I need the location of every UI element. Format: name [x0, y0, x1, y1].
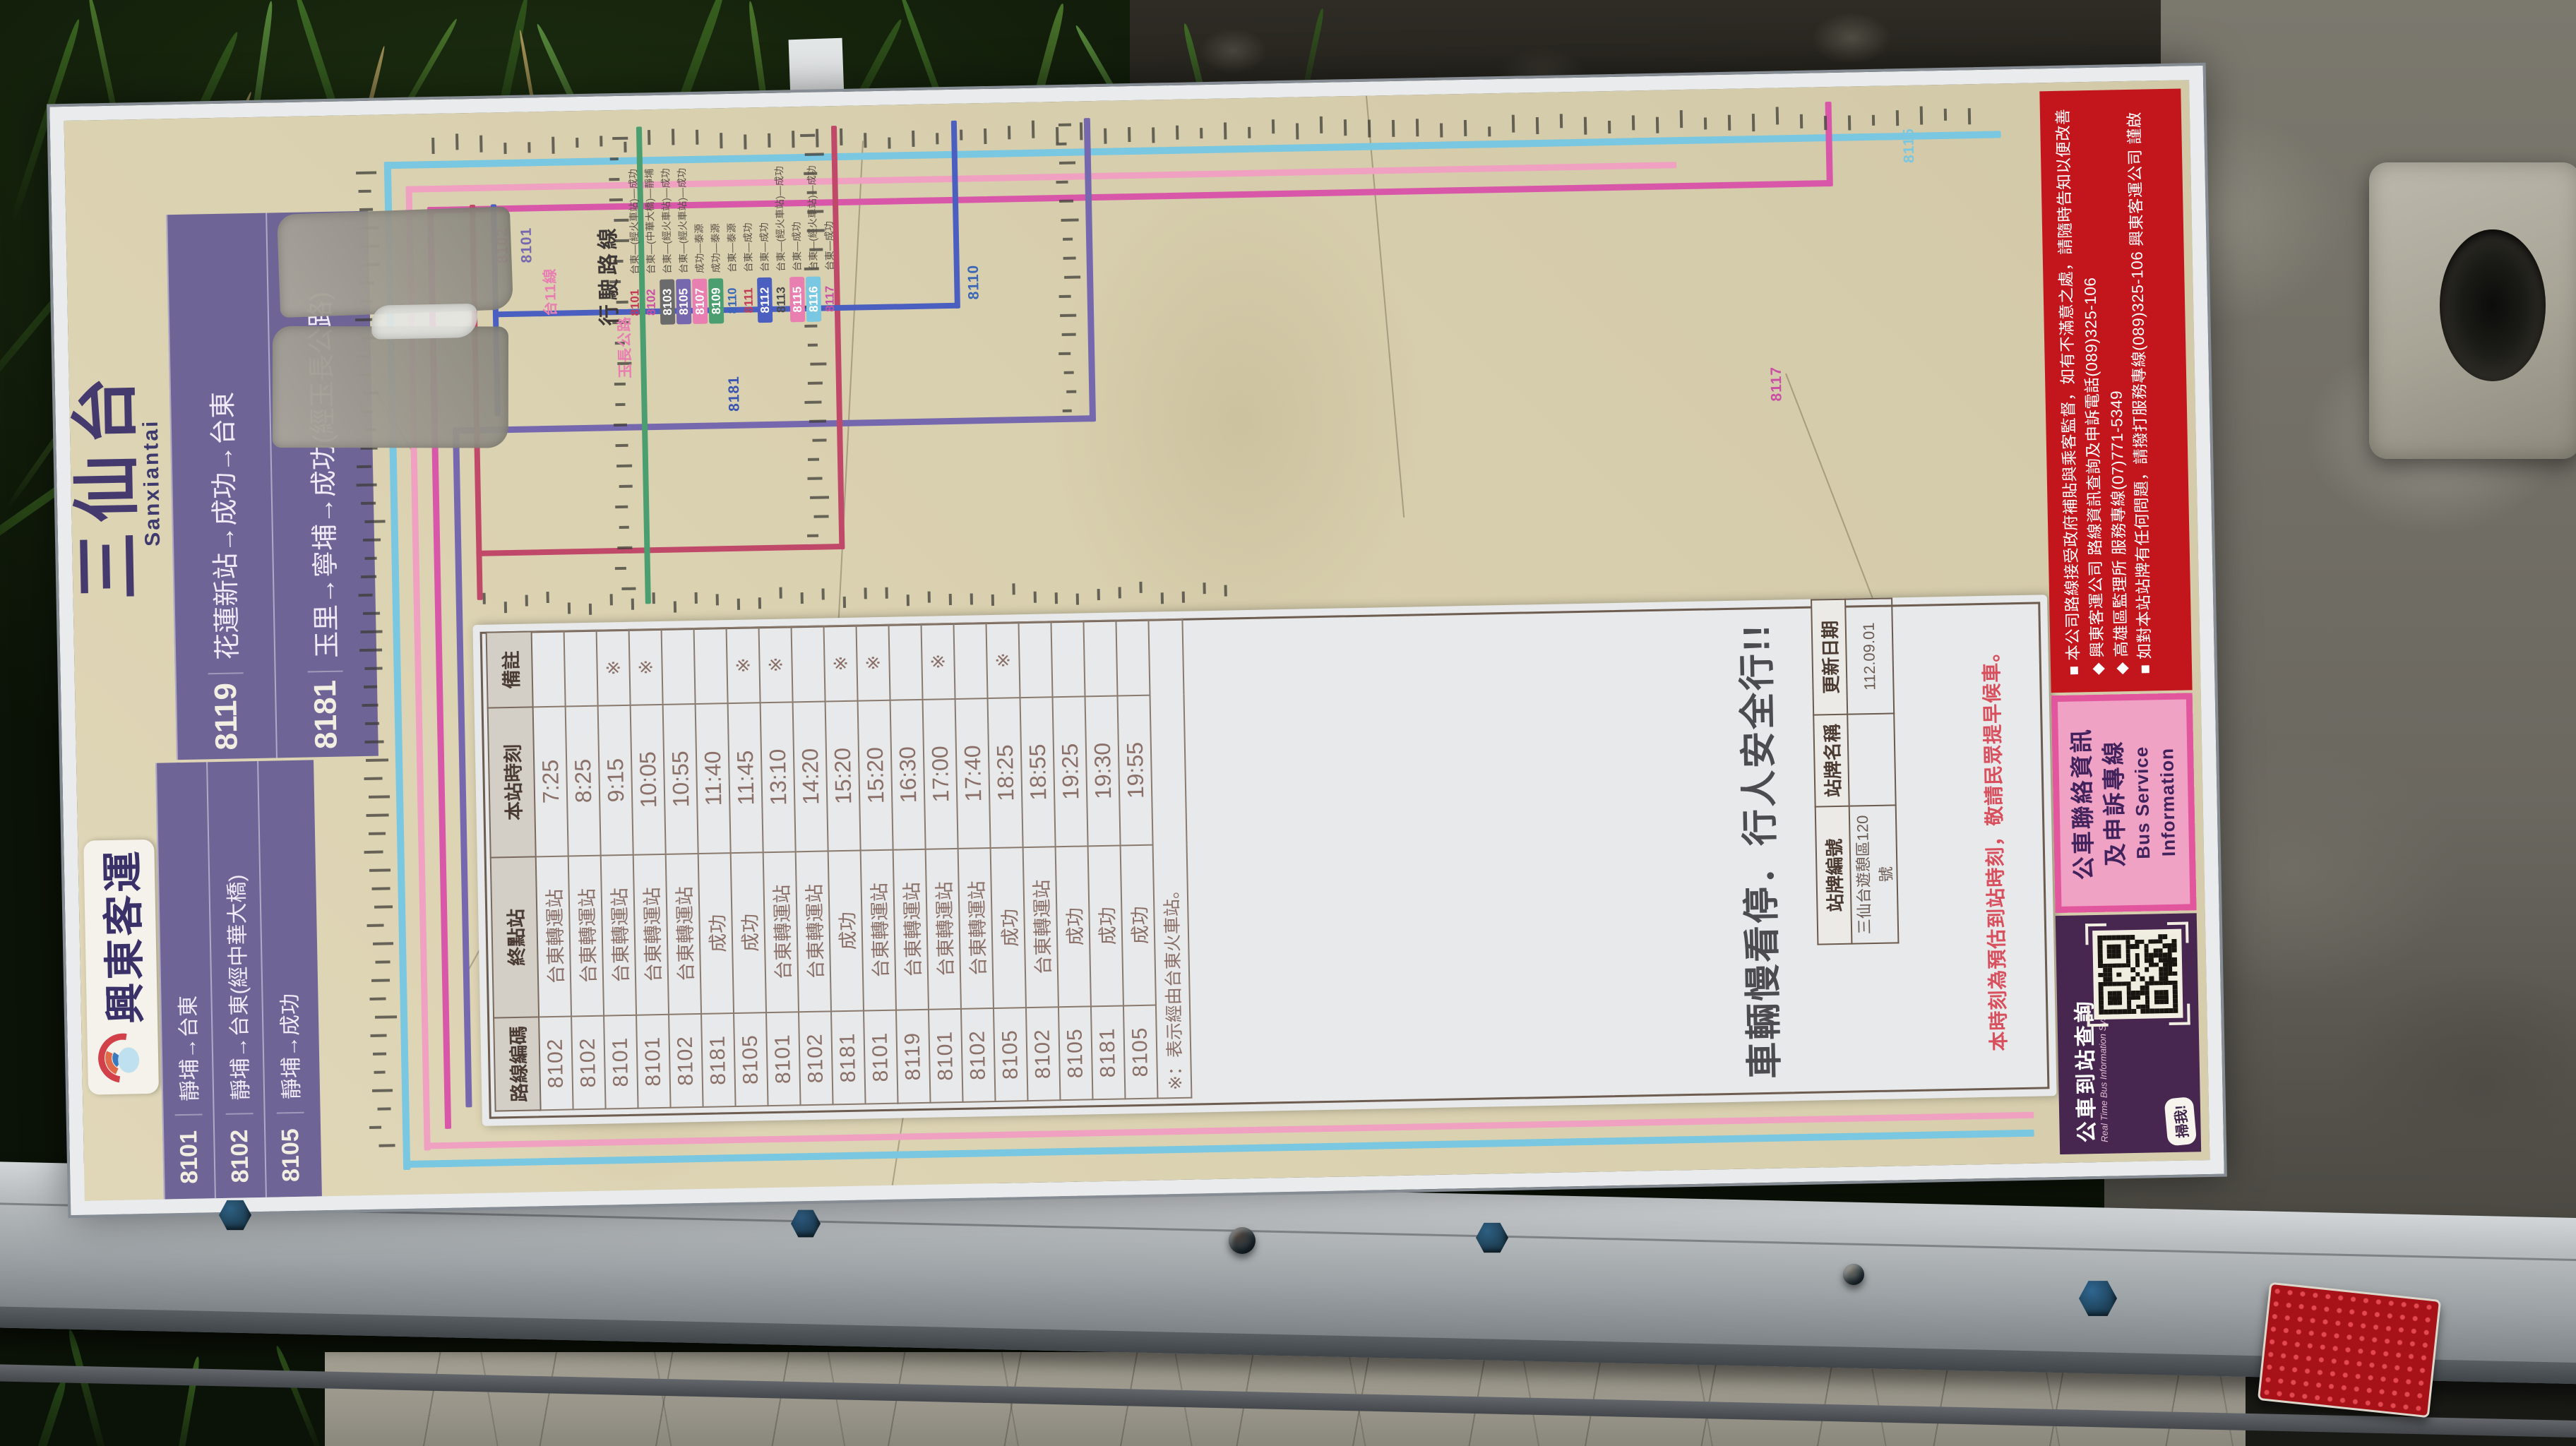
safety-slogan: 車輛慢看停．行人安全行!!	[1726, 600, 1789, 1102]
station-tick	[1063, 371, 1073, 374]
remark: ※	[986, 622, 1020, 698]
timetable-header: 終點站	[491, 856, 539, 1017]
departure-route: 8102	[539, 1016, 573, 1110]
station-tick	[1203, 582, 1205, 594]
station-tick	[810, 496, 829, 499]
station-tick	[1560, 114, 1563, 128]
station-tick	[369, 998, 386, 1000]
legend-route-number: 8102	[643, 280, 659, 325]
contact-line: Information	[2153, 693, 2182, 912]
station-tick	[1008, 126, 1010, 139]
legend-route-destination: 台東—成功	[789, 222, 804, 271]
stop-info-label: 站牌編號	[1815, 806, 1852, 945]
departure-time: 7:25	[533, 707, 568, 857]
terminus: 成功	[1088, 846, 1123, 1007]
terminus: 成功	[698, 853, 734, 1014]
station-tick	[758, 597, 761, 609]
station-tick	[356, 172, 376, 175]
station-tick	[1061, 218, 1079, 221]
departure-route: 8105	[994, 1008, 1028, 1101]
legend-route-destination: 台東—成功	[756, 222, 771, 272]
departure-time: 15:20	[825, 701, 861, 852]
legend-route-destination: 台東—(經火車站)—成功	[626, 169, 642, 275]
station-tick	[525, 595, 528, 607]
legend-route-number: 8112	[757, 277, 773, 323]
station-tick	[804, 401, 822, 404]
station-tick	[616, 465, 632, 467]
station-tick	[1080, 123, 1083, 141]
station-tick	[1224, 122, 1227, 139]
departure-route: 8102	[961, 1008, 996, 1102]
station-tick	[1584, 117, 1587, 135]
station-tick	[1063, 238, 1073, 241]
departure-time: 19:25	[1053, 696, 1088, 847]
station-tick	[1848, 116, 1851, 130]
station-tick	[1097, 589, 1100, 600]
station-tick	[912, 131, 914, 146]
terminus: 成功	[1121, 845, 1156, 1006]
departure-time: 11:40	[696, 703, 731, 854]
terminus: 台東轉運站	[926, 849, 961, 1010]
station-tick	[809, 419, 826, 422]
station-tick	[814, 515, 828, 518]
station-tick	[615, 567, 626, 570]
station-tick	[631, 599, 634, 610]
bus-company-logo-icon	[96, 1032, 149, 1084]
departure-time: 18:25	[988, 698, 1023, 848]
station-tick	[1224, 585, 1227, 596]
stop-info-value: 112.09.01	[1845, 598, 1894, 714]
stop-info-table: 站牌編號站牌名稱更新日期三仙台遊憩區120號112.09.01	[1811, 597, 1899, 945]
map-route-line	[403, 1130, 2034, 1168]
station-tick	[504, 602, 507, 613]
departure-time: 9:15	[598, 705, 633, 856]
route-row: 8101靜埔→台東	[155, 762, 215, 1199]
departure-route: 8102	[669, 1014, 703, 1108]
station-tick	[1536, 117, 1539, 134]
station-tick	[888, 137, 890, 148]
departure-route: 8119	[896, 1010, 931, 1104]
station-tick	[1056, 127, 1059, 143]
station-tick	[479, 136, 482, 153]
station-tick	[363, 539, 381, 542]
station-tick	[1059, 295, 1071, 298]
departure-time: 18:55	[1020, 697, 1056, 847]
departure-route: 8181	[1091, 1005, 1126, 1099]
route-number: 8102	[225, 1113, 254, 1198]
map-route-line	[1825, 102, 1833, 186]
map-legend-title: 行駛路線	[588, 121, 624, 326]
timetable-header: 備註	[487, 631, 533, 707]
station-tick	[455, 134, 458, 150]
station-tick	[363, 612, 381, 615]
station-tick	[674, 601, 676, 612]
departure-time: 15:20	[858, 700, 893, 851]
map-route-line	[951, 121, 960, 309]
station-tick	[716, 594, 719, 605]
station-tick	[369, 1126, 381, 1129]
station-tick	[1060, 314, 1076, 317]
station-tick	[1920, 107, 1923, 125]
station-tick	[1012, 584, 1015, 595]
departure-route: 8105	[1059, 1006, 1093, 1100]
remark	[694, 628, 728, 704]
station-tick	[1368, 119, 1371, 137]
station-tick	[1392, 120, 1395, 137]
terminus: 成功	[828, 851, 864, 1012]
station-tick	[991, 594, 994, 605]
route-destination: 靜埔→台東(經中華大橋)	[219, 874, 254, 1113]
station-tick	[431, 138, 434, 154]
departure-time: 13:10	[761, 702, 796, 852]
route-destination: 靜埔→成功	[272, 993, 305, 1113]
station-tick	[374, 905, 393, 909]
contact-line: 公車聯絡資訊	[2065, 695, 2101, 913]
map-route-label: 8117	[1768, 366, 1786, 402]
station-tick	[864, 133, 866, 148]
station-tick	[1032, 120, 1034, 138]
remark	[564, 631, 598, 707]
station-tick	[805, 325, 818, 328]
route-row: 8105靜埔→成功	[257, 760, 316, 1197]
remark	[532, 631, 566, 707]
station-tick	[361, 502, 376, 505]
station-tick	[1200, 128, 1203, 138]
map-route-line	[453, 415, 1095, 434]
remark: ※	[857, 625, 890, 701]
remark	[792, 626, 825, 703]
stop-info-label: 更新日期	[1811, 599, 1847, 715]
station-tick	[1872, 115, 1875, 126]
station-tick	[369, 795, 389, 799]
station-tick	[372, 1089, 393, 1092]
legend-route-destination: 台東—泰源	[724, 223, 739, 273]
station-tick	[616, 403, 626, 406]
station-tick	[366, 758, 388, 762]
station-tick	[1656, 117, 1659, 133]
departure-route: 8102	[1026, 1007, 1061, 1101]
station-tick	[364, 667, 382, 670]
remark	[662, 628, 696, 705]
legend-route-number: 8110	[724, 278, 740, 323]
station-tick	[503, 143, 506, 154]
station-tick	[1076, 593, 1079, 604]
station-tick	[1066, 390, 1076, 393]
remark	[1083, 621, 1117, 697]
station-tick	[359, 649, 382, 652]
legend-route-number: 8101	[627, 280, 643, 325]
station-tick	[372, 887, 390, 890]
station-tick	[366, 813, 388, 817]
station-tick	[807, 477, 822, 480]
departure-time: 8:25	[566, 706, 601, 856]
station-tick	[365, 520, 386, 523]
remark	[1116, 620, 1150, 696]
legend-route-number: 8103	[660, 279, 675, 324]
station-tick	[378, 1107, 391, 1110]
station-tick	[364, 777, 382, 780]
departure-route: 8101	[864, 1010, 898, 1104]
station-tick	[1488, 126, 1491, 137]
map-route-label: 台11線	[539, 268, 561, 316]
departure-route: 8101	[929, 1009, 963, 1103]
legend-route-number: 8116	[806, 277, 821, 322]
arrival-query-panel: 公車到站查詢 Real Time Bus Information System …	[2056, 913, 2201, 1154]
station-tick	[610, 594, 613, 605]
legend-route-destination: 台東—(經火車站)—成功	[772, 166, 788, 272]
tape-patch	[277, 206, 513, 318]
station-tick	[970, 593, 973, 604]
stop-info-label: 站牌名稱	[1813, 715, 1849, 807]
tape-patch-white	[371, 304, 478, 340]
stop-info-value	[1847, 714, 1895, 806]
station-tick	[355, 318, 374, 321]
terminus: 成功	[991, 847, 1026, 1008]
legend-route-destination: 台東—成功	[740, 222, 755, 272]
station-tick	[737, 598, 740, 609]
terminus: 成功	[1056, 846, 1091, 1007]
station-tick	[364, 851, 383, 854]
station-tick	[379, 1144, 395, 1147]
station-tick	[1608, 121, 1611, 133]
station-tick	[1824, 116, 1827, 131]
photo-scene: 興東客運 8101靜埔→台東8102靜埔→台東(經中華大橋)8105靜埔→成功 …	[0, 0, 2576, 1446]
tape-patch	[273, 326, 508, 448]
terminus: 台東轉運站	[796, 851, 831, 1012]
map-route-line	[1084, 118, 1096, 422]
departure-time: 19:30	[1085, 696, 1121, 847]
station-tick	[527, 143, 530, 153]
concrete-slab	[2369, 162, 2576, 459]
legend-route-number: 8107	[692, 279, 708, 324]
station-tick	[1440, 124, 1443, 138]
station-tick	[1161, 592, 1164, 604]
terminus: 成功	[731, 852, 766, 1013]
legend-route-destination: 台東—成功	[821, 221, 836, 270]
legend-route-destination: 成功—泰源	[691, 224, 706, 273]
legend-route-number: 8117	[822, 276, 837, 321]
station-tick	[801, 592, 804, 604]
terminus: 台東轉運站	[666, 854, 701, 1015]
departure-route: 8101	[766, 1012, 801, 1106]
contact-line: 及申訴專線	[2097, 694, 2133, 912]
notice-panel: ■ 本公司路線接受政府補貼與乘客監督，如有不滿意之處，請隨時告知以便改善◆ 興東…	[2039, 88, 2192, 693]
station-tick	[1728, 115, 1731, 131]
station-tick	[568, 602, 571, 614]
remark	[1018, 621, 1052, 698]
company-name: 興東客運	[89, 848, 152, 1024]
terminus: 台東轉運站	[1023, 847, 1059, 1008]
departure-time: 10:05	[631, 705, 666, 855]
route-number: 8181	[307, 671, 344, 758]
bracket-seam	[0, 1202, 2576, 1262]
station-tick	[1704, 118, 1707, 130]
station-tick	[1320, 116, 1323, 133]
legend-route-number: 8109	[708, 278, 724, 323]
station-tick	[1752, 114, 1755, 131]
station-tick	[1176, 126, 1179, 141]
station-tick	[928, 592, 931, 603]
departure-time: 10:55	[663, 704, 698, 854]
legend-route-number: 8105	[676, 279, 691, 324]
station-tick	[1056, 143, 1066, 145]
grass-blade	[274, 1345, 324, 1446]
slab-hole	[2440, 229, 2546, 381]
map-route-line	[476, 544, 843, 556]
station-tick	[589, 604, 592, 615]
map-route-label: 8101	[518, 227, 536, 263]
station-tick	[617, 546, 633, 549]
terminus: 台東轉運站	[536, 856, 571, 1017]
remark: ※	[824, 626, 858, 702]
station-tick	[949, 594, 952, 605]
remark	[953, 623, 987, 699]
route-number: 8119	[208, 672, 244, 759]
station-tick	[960, 130, 962, 141]
station-tick	[807, 344, 817, 347]
remark	[1051, 621, 1085, 697]
station-tick	[1062, 333, 1076, 336]
station-tick	[551, 137, 554, 154]
station-tick	[808, 381, 823, 384]
station-tick	[1416, 119, 1419, 136]
station-tick	[1063, 257, 1076, 260]
station-tick	[359, 190, 371, 193]
legend-route-destination: 台東—(經火車站)—成功	[804, 165, 821, 271]
legend-route-number: 8111	[741, 277, 756, 323]
stop-info-value: 三仙台遊憩區120號	[1849, 806, 1899, 944]
legend-route-destination: 成功—泰源	[708, 223, 722, 273]
station-tick	[364, 740, 384, 743]
company-card: 興東客運	[83, 839, 159, 1095]
station-tick	[614, 383, 626, 386]
terminus: 台東轉運站	[893, 849, 929, 1010]
station-tick	[779, 587, 782, 599]
timetable-sheet: 路線編碼終點站本站時刻備註8102台東轉運站7:258102台東轉運站8:258…	[472, 594, 2056, 1126]
route-destination: 花蓮新站→成功→台東	[201, 391, 245, 673]
station-tick	[812, 438, 826, 441]
terminus: 台東轉運站	[568, 856, 604, 1017]
station-tick	[1272, 119, 1275, 133]
station-tick	[695, 592, 698, 604]
departure-route: 8102	[571, 1016, 606, 1110]
station-tick	[1119, 587, 1121, 599]
map-route-label: 8115	[1900, 128, 1918, 163]
station-tick	[840, 129, 842, 145]
terminus: 台東轉運站	[861, 850, 896, 1011]
terminus: 台東轉運站	[633, 854, 669, 1015]
station-tick	[807, 534, 818, 537]
contact-panel: 公車聯絡資訊及申訴專線Bus ServiceInformation	[2051, 693, 2197, 913]
station-tick	[1944, 109, 1947, 121]
station-tick	[615, 506, 628, 508]
station-tick	[357, 465, 371, 468]
departure-route: 8102	[799, 1011, 833, 1105]
scan-me-bubble: 掃我!	[2164, 1097, 2197, 1146]
station-tick	[365, 722, 380, 725]
station-tick	[483, 593, 486, 604]
station-tick	[1464, 120, 1467, 136]
legend-route-destination: 台東—(中華大橋)—靜埔	[642, 169, 658, 275]
sign-content: 興東客運 8101靜埔→台東8102靜埔→台東(經中華大橋)8105靜埔→成功 …	[64, 80, 2210, 1201]
map-route-label: 8110	[965, 265, 983, 300]
station-tick	[616, 444, 628, 447]
station-tick	[371, 1034, 387, 1036]
sign-board: 興東客運 8101靜埔→台東8102靜埔→台東(經中華大橋)8105靜埔→成功 …	[49, 66, 2224, 1215]
station-title: 三仙台	[68, 211, 147, 756]
station-tick	[1056, 181, 1068, 184]
legend-route-number: 8115	[789, 277, 805, 322]
station-tick	[369, 868, 390, 872]
station-tick	[1776, 107, 1779, 125]
station-tick	[1104, 129, 1107, 144]
station-tick	[1059, 124, 1072, 126]
route-number: 8101	[174, 1114, 203, 1200]
remark: ※	[629, 629, 663, 705]
station-tick	[936, 133, 938, 144]
legend-route-number: 8113	[773, 277, 789, 322]
station-tick	[359, 594, 373, 597]
red-reflector	[2258, 1282, 2441, 1418]
remark: ※	[921, 623, 955, 700]
timetable: 路線編碼終點站本站時刻備註8102台東轉運站7:258102台東轉運站8:258…	[486, 619, 1193, 1112]
station-tick	[375, 960, 390, 963]
departure-time: 11:45	[728, 703, 763, 853]
departure-time: 16:30	[890, 700, 926, 850]
timetable-header: 本站時刻	[488, 707, 536, 857]
departure-time: 17:40	[955, 698, 991, 849]
legend-route-destination: 台東—(經火車站)—成功	[674, 168, 691, 274]
map-legend: 行駛路線 8101台東—(經火車站)—成功8102台東—(中華大橋)—靜埔810…	[588, 116, 839, 326]
grass-blade	[25, 1378, 68, 1446]
station-tick	[1063, 410, 1072, 412]
station-tick	[1059, 200, 1074, 203]
station-tick	[1632, 115, 1635, 130]
station-tick	[369, 832, 386, 835]
route-destination: 靜埔→台東	[170, 996, 203, 1115]
departure-time: 14:20	[793, 701, 828, 852]
bracket-bolt	[1843, 1264, 1864, 1285]
station-tick	[362, 704, 378, 707]
left-route-band: 8101靜埔→台東8102靜埔→台東(經中華大橋)8105靜埔→成功	[155, 760, 322, 1199]
qr-modules	[2097, 934, 2178, 1015]
station-tick	[1248, 127, 1251, 138]
station-tick	[810, 362, 826, 365]
station-tick	[373, 942, 393, 945]
remark: ※	[597, 630, 631, 706]
station-tick	[547, 592, 549, 603]
remark	[889, 624, 923, 700]
departure-route: 8105	[734, 1012, 768, 1106]
station-tick	[1055, 592, 1058, 604]
station-tick	[808, 458, 820, 461]
station-tick	[822, 589, 825, 600]
station-tick	[1064, 275, 1080, 278]
departure-time: 17:00	[923, 699, 958, 849]
station-tick	[619, 485, 633, 488]
departure-route: 8105	[1123, 1005, 1158, 1099]
map-route-label: 8181	[726, 376, 744, 412]
station-tick	[885, 587, 888, 599]
departure-route: 8101	[604, 1015, 638, 1109]
bracket-bolt	[1229, 1227, 1256, 1254]
station-tick	[1059, 352, 1070, 355]
station-tick	[1344, 120, 1347, 136]
station-tick	[1128, 128, 1131, 142]
station-tick	[373, 1053, 386, 1056]
station-tick	[1968, 108, 1971, 124]
map-route-line	[453, 428, 472, 1107]
